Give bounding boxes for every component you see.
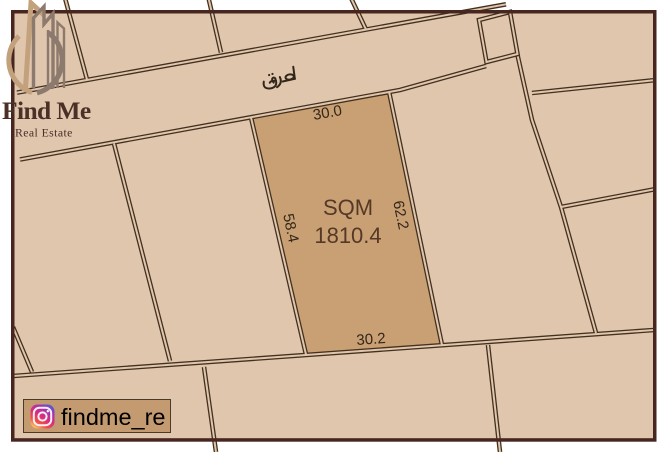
svg-text:30.2: 30.2: [356, 330, 386, 349]
svg-text:1810.4: 1810.4: [314, 223, 381, 248]
svg-text:findme_re: findme_re: [61, 404, 166, 430]
svg-text:Real Estate: Real Estate: [15, 126, 73, 140]
svg-text:SQM: SQM: [323, 195, 373, 220]
svg-text:Find Me: Find Me: [2, 96, 91, 125]
